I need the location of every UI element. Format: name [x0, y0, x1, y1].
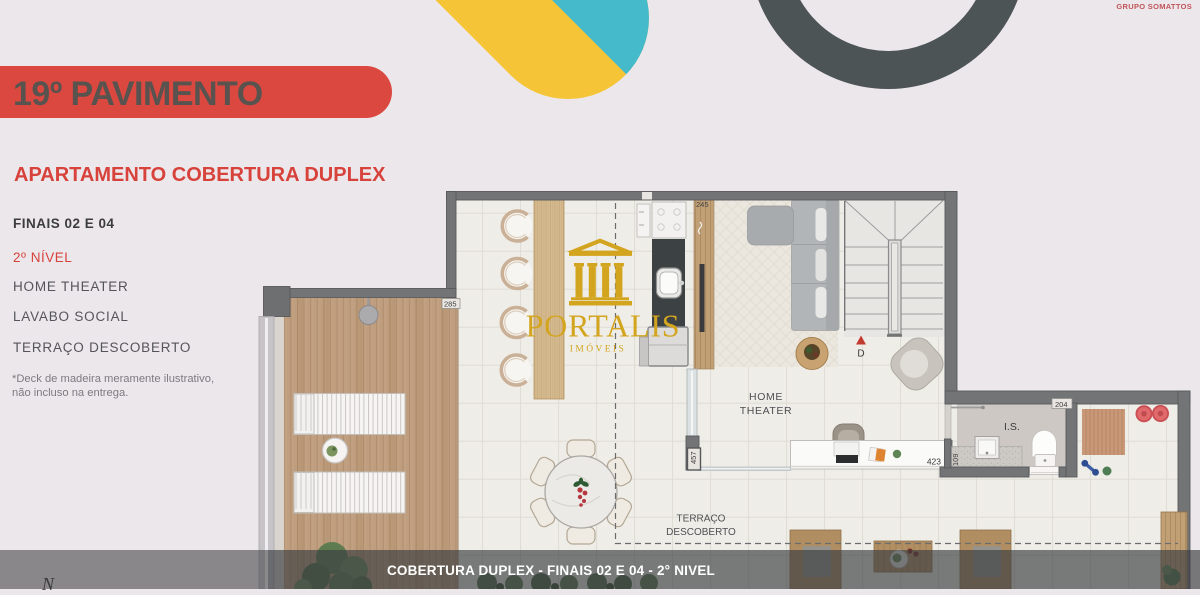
svg-text:DESCOBERTO: DESCOBERTO — [666, 527, 736, 538]
svg-text:THEATER: THEATER — [740, 405, 792, 417]
svg-text:I.S.: I.S. — [1004, 421, 1020, 433]
svg-text:245: 245 — [696, 200, 709, 209]
svg-text:109: 109 — [951, 453, 960, 466]
svg-text:457: 457 — [689, 451, 698, 464]
svg-text:IMÓVEIS: IMÓVEIS — [570, 343, 626, 355]
svg-text:PORTALIS: PORTALIS — [526, 308, 681, 344]
svg-text:D: D — [857, 349, 864, 360]
svg-text:285: 285 — [444, 300, 457, 309]
svg-text:204: 204 — [1055, 400, 1068, 409]
svg-text:HOME: HOME — [749, 391, 783, 403]
svg-text:423: 423 — [927, 457, 941, 467]
svg-text:TERRAÇO: TERRAÇO — [677, 514, 726, 525]
